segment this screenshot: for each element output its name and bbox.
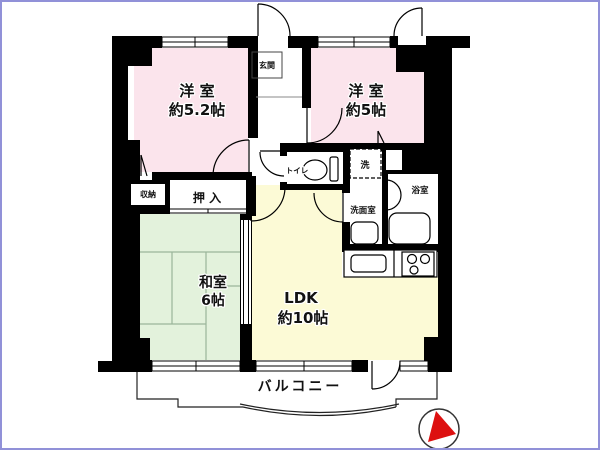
ldk-floor-left bbox=[252, 185, 342, 360]
western-room-2-size: 約5帖 bbox=[346, 101, 386, 119]
wall-left bbox=[112, 36, 128, 372]
window-top-right bbox=[318, 37, 390, 47]
ldk-size: 約10帖 bbox=[278, 309, 329, 327]
wall-bottom-2 bbox=[240, 360, 256, 372]
pillar-top-right bbox=[396, 45, 424, 72]
window-bottom-washitsu bbox=[152, 361, 240, 371]
washbasin-icon bbox=[351, 222, 378, 244]
pillar-bottom-left bbox=[118, 338, 150, 368]
wall-h1a bbox=[126, 172, 136, 180]
stove-icon bbox=[402, 252, 434, 276]
wall-h1b bbox=[152, 172, 252, 180]
western-room-2-label: 洋 室 bbox=[348, 82, 383, 100]
laundry-label: 洗 bbox=[360, 159, 369, 171]
wall-left-stub bbox=[98, 361, 114, 372]
wall-bath-left bbox=[382, 174, 388, 252]
japanese-room-label: 和室 bbox=[199, 274, 227, 291]
toilet-tank-icon bbox=[330, 157, 338, 181]
ldk-label: LDK bbox=[284, 289, 319, 307]
ldk-floor-right bbox=[342, 277, 438, 360]
storage-label: 収納 bbox=[140, 189, 156, 199]
service-door bbox=[394, 8, 422, 36]
entrance-door bbox=[258, 4, 290, 36]
wall-top-1 bbox=[112, 36, 162, 48]
meter-box bbox=[386, 150, 402, 170]
closet-sliding-door bbox=[170, 209, 246, 213]
wall-corridor-left bbox=[248, 36, 258, 138]
wall-corridor-right bbox=[302, 36, 311, 108]
japanese-room-size: 6帖 bbox=[201, 292, 225, 309]
floorplan-canvas: 洋 室 約5.2帖 洋 室 約5帖 和室 6帖 LDK 約10帖 押 入 収納 … bbox=[0, 0, 600, 450]
wall-bottom-3 bbox=[352, 360, 368, 372]
floorplan-drawing: 洋 室 約5.2帖 洋 室 約5帖 和室 6帖 LDK 約10帖 押 入 収納 … bbox=[2, 2, 598, 448]
balcony-door bbox=[372, 361, 400, 389]
wall-right bbox=[438, 36, 452, 372]
washroom-label: 洗面室 bbox=[350, 205, 376, 216]
wall-washroom-a bbox=[342, 146, 350, 193]
western-room-1-size: 約5.2帖 bbox=[169, 101, 226, 119]
toilet-label: トイレ bbox=[286, 166, 309, 175]
bathroom-label: 浴室 bbox=[411, 185, 429, 196]
bathroom-folding-door bbox=[386, 180, 401, 210]
window-balcony-fixed bbox=[400, 361, 428, 371]
window-top-left bbox=[162, 37, 228, 47]
window-bottom-ldk bbox=[256, 361, 352, 371]
closet-label: 押 入 bbox=[193, 190, 221, 205]
compass-icon bbox=[419, 409, 459, 448]
bathtub-icon bbox=[389, 213, 430, 244]
western-room-1-label: 洋 室 bbox=[179, 82, 214, 100]
entrance-label: 玄関 bbox=[259, 60, 275, 70]
wall-right-thick bbox=[424, 45, 438, 151]
washitsu-sliding-gap bbox=[241, 220, 251, 324]
balcony-label: バルコニー bbox=[258, 379, 343, 395]
kitchen-sink-icon bbox=[351, 255, 386, 272]
